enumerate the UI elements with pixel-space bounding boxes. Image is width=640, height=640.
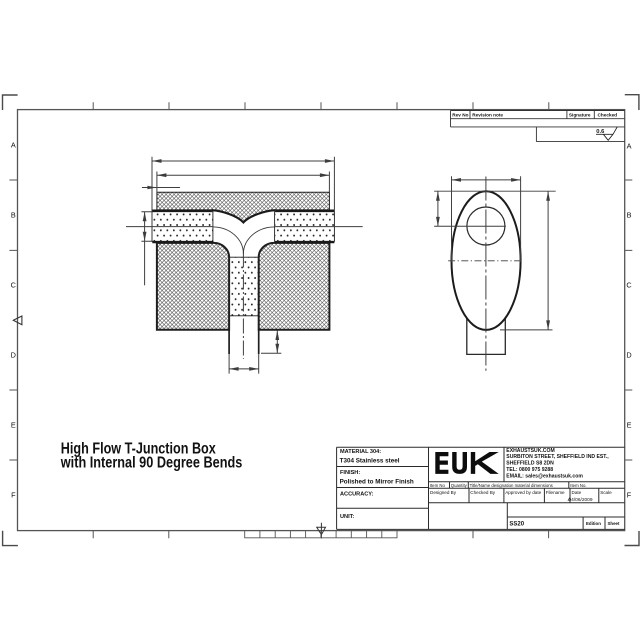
svg-text:Checked: Checked	[598, 112, 618, 117]
svg-text:Quantity: Quantity	[451, 483, 468, 488]
svg-text:Date: Date	[572, 490, 582, 495]
svg-text:Signature: Signature	[569, 112, 591, 117]
svg-text:Approved by date: Approved by date	[505, 490, 541, 495]
svg-text:E: E	[11, 421, 16, 430]
svg-text:SHEFFIELD S8 2DN: SHEFFIELD S8 2DN	[506, 461, 554, 467]
svg-text:Item No: Item No	[430, 483, 446, 488]
svg-text:EXHAUSTSUK.COM: EXHAUSTSUK.COM	[506, 448, 554, 454]
svg-text:with Internal 90 Degree Bends: with Internal 90 Degree Bends	[60, 455, 243, 472]
svg-text:UNIT:: UNIT:	[340, 514, 354, 520]
svg-text:Item No.: Item No.	[570, 483, 586, 488]
svg-text:A: A	[11, 141, 16, 150]
svg-text:Designed By: Designed By	[430, 490, 457, 495]
svg-text:B: B	[627, 211, 632, 220]
svg-text:Filename: Filename	[546, 490, 565, 495]
svg-text:MATERIAL 304:: MATERIAL 304:	[340, 449, 381, 455]
svg-text:F: F	[627, 491, 632, 500]
svg-text:SS20: SS20	[509, 521, 524, 527]
svg-text:A: A	[627, 142, 632, 151]
svg-text:F: F	[11, 491, 16, 500]
svg-text:D: D	[626, 351, 631, 360]
svg-text:B: B	[11, 211, 16, 220]
svg-text:Title/Name designation materia: Title/Name designation material dimensio…	[470, 483, 553, 488]
svg-text:04/06/2009: 04/06/2009	[569, 497, 593, 503]
svg-text:FINISH:: FINISH:	[340, 470, 360, 476]
svg-text:C: C	[11, 281, 16, 290]
svg-text:T304 Stainless steel: T304 Stainless steel	[340, 457, 400, 464]
svg-text:Checked By: Checked By	[470, 490, 495, 495]
svg-text:EMAIL: sales@exhaustsuk.com: EMAIL: sales@exhaustsuk.com	[506, 473, 583, 479]
svg-text:Revision note: Revision note	[472, 112, 503, 117]
svg-text:Edition: Edition	[586, 521, 601, 526]
svg-text:D: D	[11, 351, 16, 360]
svg-text:C: C	[626, 281, 631, 290]
svg-text:E: E	[627, 421, 632, 430]
svg-text:Rev No: Rev No	[452, 112, 468, 117]
svg-text:Scale: Scale	[600, 490, 612, 495]
svg-text:Polished to Mirror Finish: Polished to Mirror Finish	[340, 479, 414, 486]
svg-text:Sheet: Sheet	[608, 521, 620, 526]
svg-text:ACCURACY:: ACCURACY:	[340, 492, 374, 498]
svg-text:TEL: 0800 975 9288: TEL: 0800 975 9288	[506, 467, 553, 473]
svg-text:SURBITON STREET, SHEFFIELD IND: SURBITON STREET, SHEFFIELD IND EST.,	[506, 454, 609, 460]
